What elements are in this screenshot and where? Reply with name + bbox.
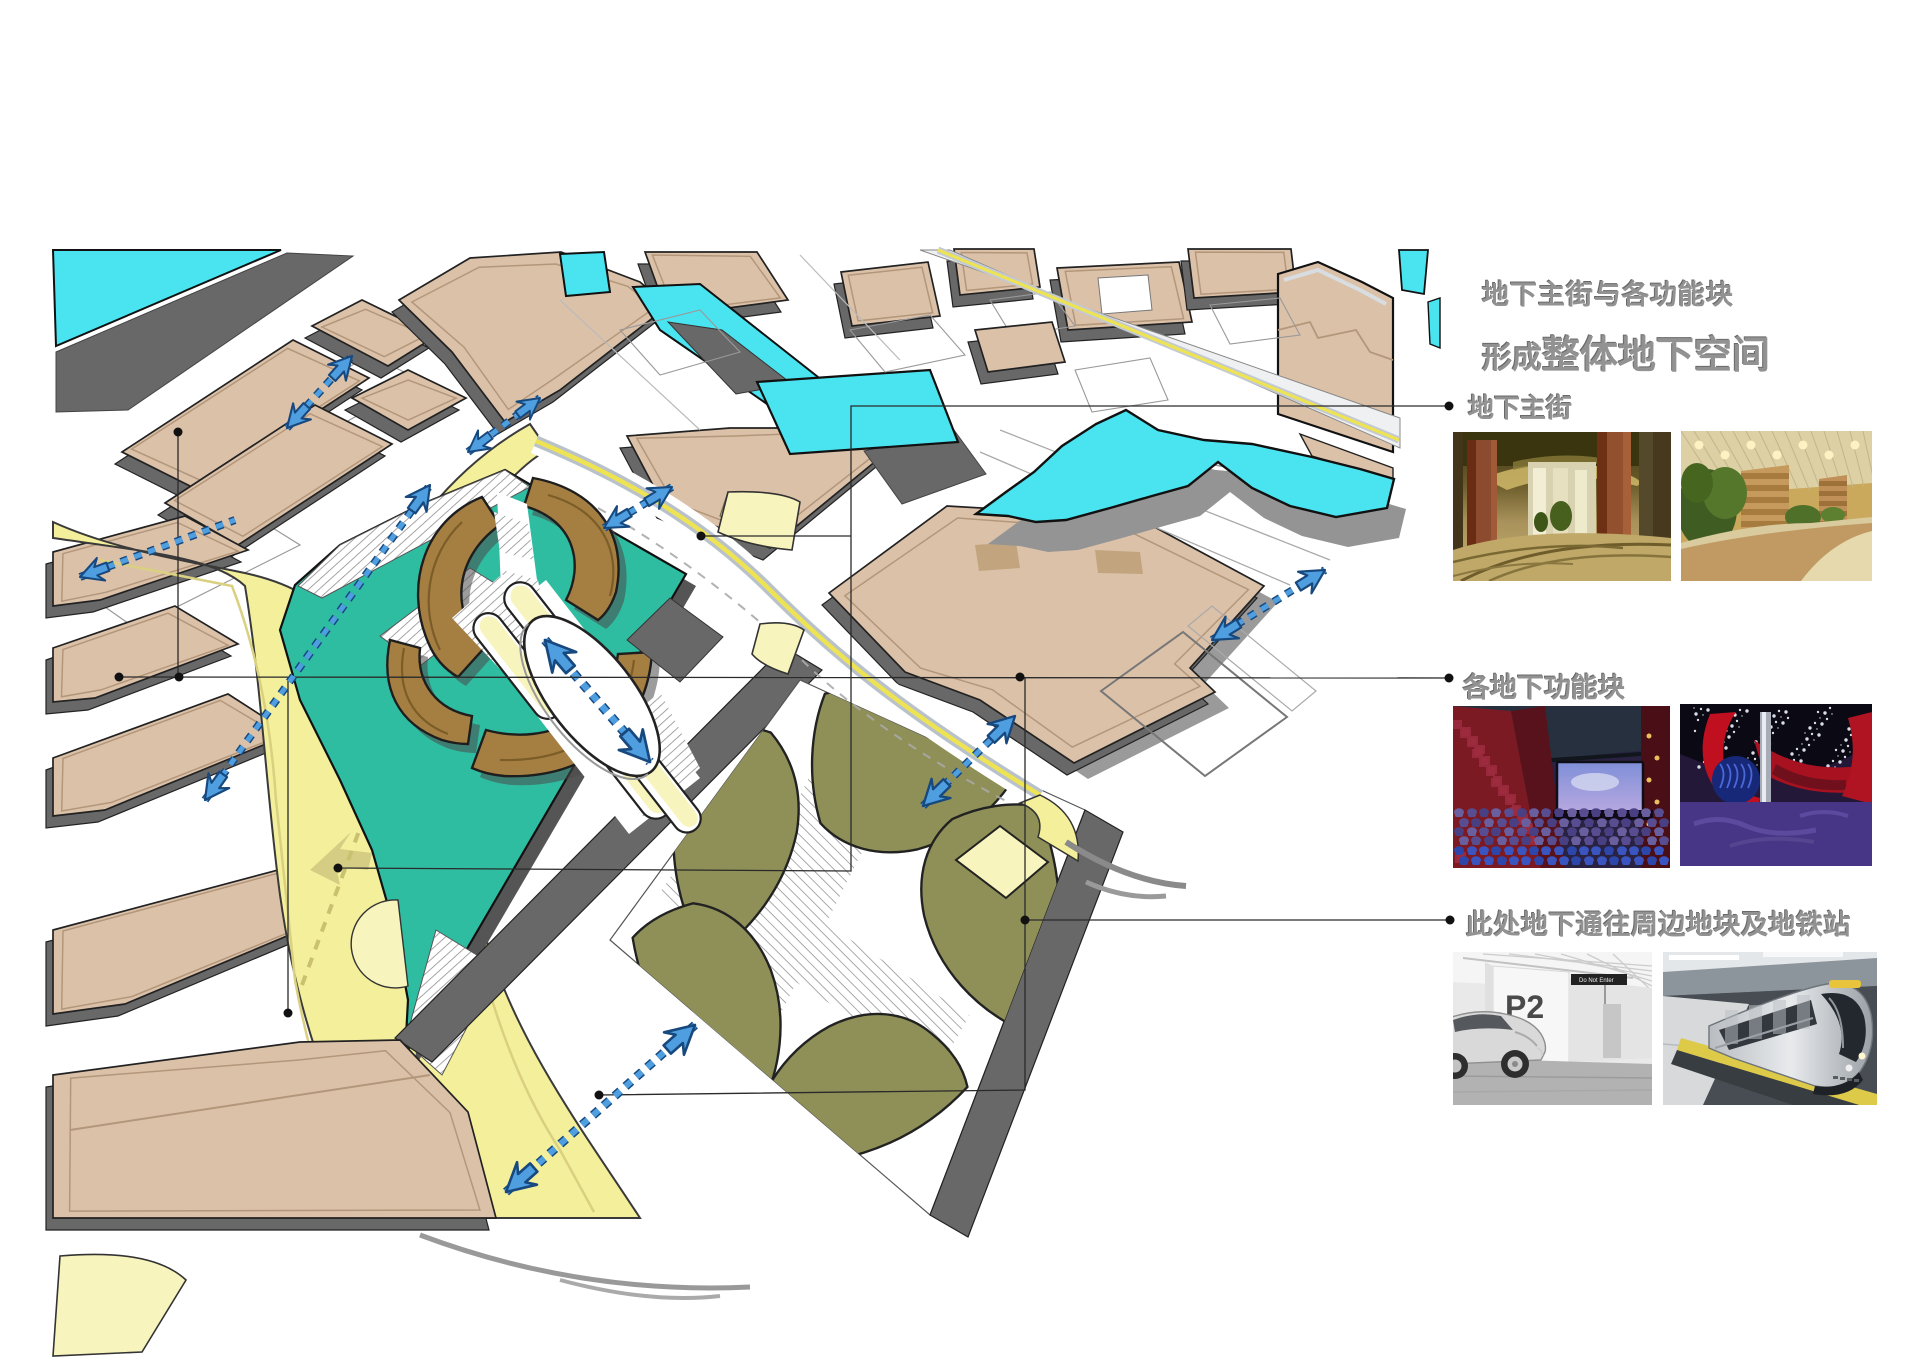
svg-text:Do Not Enter: Do Not Enter [1579,978,1614,984]
